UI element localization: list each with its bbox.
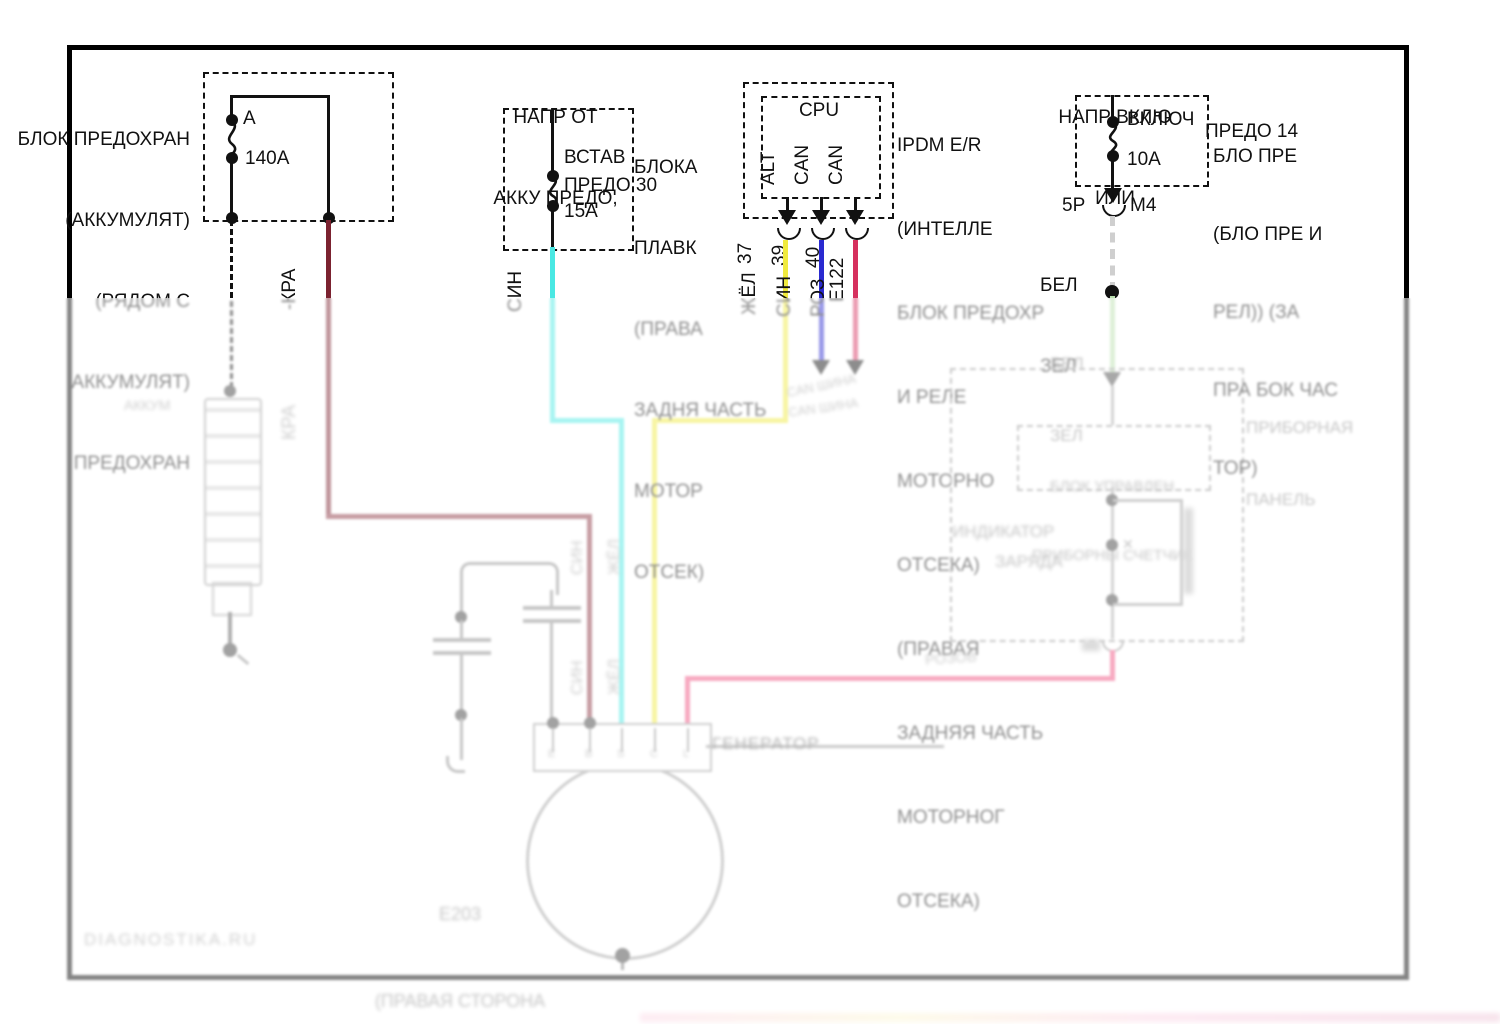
dashed-wire <box>230 220 233 388</box>
label-line: ИЛИ <box>1040 185 1190 212</box>
junction-dot <box>224 385 236 397</box>
arrow-down-icon <box>778 210 796 225</box>
wire-cyan-label: СИН <box>506 271 526 312</box>
wire-segment <box>1111 386 1114 425</box>
generator-label: ГЕНЕРАТОР <box>712 734 820 754</box>
arrow-down-icon <box>812 360 830 375</box>
label-line: НАПР ОТ <box>468 104 643 131</box>
terminal-letter: В <box>585 748 592 760</box>
wire-segment <box>230 95 330 98</box>
ignition-header: НАПР ВКЛЮ ИЛИ <box>1040 50 1190 266</box>
wire-kra-label: -КРА <box>280 269 300 310</box>
pin-name-can2: CAN <box>827 145 847 185</box>
label-line: ОТСЕК) <box>634 559 766 586</box>
wire-kra <box>326 514 592 519</box>
arrow-down-icon <box>846 210 864 225</box>
fuse-point-label: А <box>243 105 256 132</box>
ignition-fuse-label: ВКЛЮЧ <box>1127 106 1194 133</box>
label-line: ЗАДНЯ ЧАСТЬ <box>634 397 766 424</box>
washed-connector-code <box>1082 640 1100 651</box>
wire-segment <box>327 95 330 220</box>
terminal-letter: С <box>650 748 658 760</box>
washed-wire-label: СИН <box>568 540 588 575</box>
wire-segment <box>460 718 463 760</box>
label-line: МОТОР <box>634 478 766 505</box>
label-line: ПРА БОК ЧАС <box>1213 378 1338 404</box>
ignition-side-label: БЛО ПРЕ (БЛО ПРЕ И РЕЛ)) (ЗА ПРА БОК ЧАС… <box>1213 92 1338 534</box>
capacitor-plate <box>433 638 491 642</box>
label-line: (ПРАВА <box>634 316 766 343</box>
label-line: БЛО ПРЕ <box>1213 144 1338 170</box>
wire-pink-can-label: РОЗ <box>809 278 829 317</box>
terminal-letter: S <box>617 748 624 760</box>
wire-cyan <box>550 418 624 423</box>
ignition-fuse-rating: 10А <box>1127 146 1161 173</box>
wire-kra-label-washed: КРА <box>280 405 300 440</box>
junction-dot <box>226 114 238 126</box>
label-line: БЛОК ПРЕДОХР <box>897 300 1044 328</box>
fuse-rating-label: 15А <box>564 198 598 225</box>
charge-indicator-label-1: ИНДИКАТОР <box>952 518 1054 545</box>
label-line: ЗАДНЯЯ ЧАСТЬ <box>897 720 1044 748</box>
wire-segment <box>786 197 789 211</box>
ground-dot <box>615 948 630 963</box>
label-line: (АККУМУЛЯТ) <box>0 207 190 234</box>
label-line: (БЛО ПРЕ И <box>1213 222 1338 248</box>
label-line: (ПРАВАЯ СТОРОНА <box>360 987 560 1016</box>
fuse-label: ВСТАВ <box>564 144 625 171</box>
label-line: ПРЕДОХРАН <box>0 450 190 477</box>
washed-wire-label: ЖЁЛ <box>605 659 625 695</box>
wire-pink-can <box>853 240 858 362</box>
wire-green-white <box>1110 296 1115 374</box>
cpu-label: CPU <box>761 97 877 124</box>
junction-dot <box>226 152 238 164</box>
ignition-fuse-overlap-label: ПРЕДО 14 <box>1205 118 1298 145</box>
fuse-label: ПРЕДО 30 <box>564 172 657 199</box>
wire-cyan <box>550 247 555 423</box>
wire-blue-label: СИН <box>775 276 795 317</box>
washed-vertical-text-blob <box>1184 508 1193 594</box>
connector-code-e122: Е122 <box>828 258 848 302</box>
washed-wire-label: СИН <box>568 660 588 695</box>
watermark: DIAGNOSTIKA.RU <box>84 930 257 950</box>
wire-segment <box>460 620 463 640</box>
resistor-branch <box>1113 499 1183 606</box>
condenser-loop-top <box>460 562 559 595</box>
label-line: IPDM E/R <box>897 132 1044 160</box>
wire-segment <box>228 612 232 646</box>
wire-segment <box>460 654 463 714</box>
wire-segment <box>854 197 857 211</box>
wire-pink <box>685 676 690 725</box>
label-line: ТОР) <box>1213 456 1338 482</box>
label-line: ПЛАВК <box>634 235 766 262</box>
terminal-letter: Е <box>548 748 555 760</box>
label-line: БЕЛ <box>1040 272 1078 299</box>
cutoff-diagram-strip <box>640 1013 1500 1022</box>
arrow-down-icon <box>812 210 830 225</box>
fuse-rating-label: 140А <box>245 145 289 172</box>
pin-name-can1: CAN <box>793 145 813 185</box>
wire-pink <box>685 676 1115 681</box>
label-line: (ИНТЕЛЛЕ <box>897 216 1044 244</box>
generator-ground-label: Е203 (ПРАВАЯ СТОРОНА ДВИГАТЕ ОТСЕК) <box>360 842 560 1024</box>
label-line: ОТСЕКА) <box>897 888 1044 916</box>
label-line: (РЯДОМ С <box>0 288 190 315</box>
label-line: БЛОК ПРЕДОХРАН <box>0 126 190 153</box>
charge-indicator-label-2: ЗАРЯДА <box>995 548 1063 575</box>
wire-segment <box>820 197 823 211</box>
washed-wire-label: ЖЁЛ <box>605 539 625 575</box>
label-line: МОТОРНОГ <box>897 804 1044 832</box>
wiring-diagram: БЛОК ПРЕДОХРАН (АККУМУЛЯТ) (РЯДОМ С АККУ… <box>0 0 1500 1024</box>
label-line: РЕЛ)) (ЗА <box>1213 300 1338 326</box>
battery-symbol <box>204 398 262 586</box>
battery-lower <box>212 582 252 616</box>
ground-dot <box>223 643 237 657</box>
label-line: АККУМУЛЯТ) <box>0 369 190 396</box>
wire-pink-label: РОЗОВ <box>924 648 977 669</box>
label-line: Е203 <box>360 900 560 929</box>
capacitor-plate <box>523 606 581 610</box>
wire-segment <box>550 622 553 723</box>
battery-fuse-block-label: БЛОК ПРЕДОХРАН (АККУМУЛЯТ) (РЯДОМ С АККУ… <box>0 72 190 531</box>
terminal-letter: L <box>683 748 689 760</box>
wire-segment <box>230 158 233 220</box>
wire-kra <box>326 220 331 519</box>
